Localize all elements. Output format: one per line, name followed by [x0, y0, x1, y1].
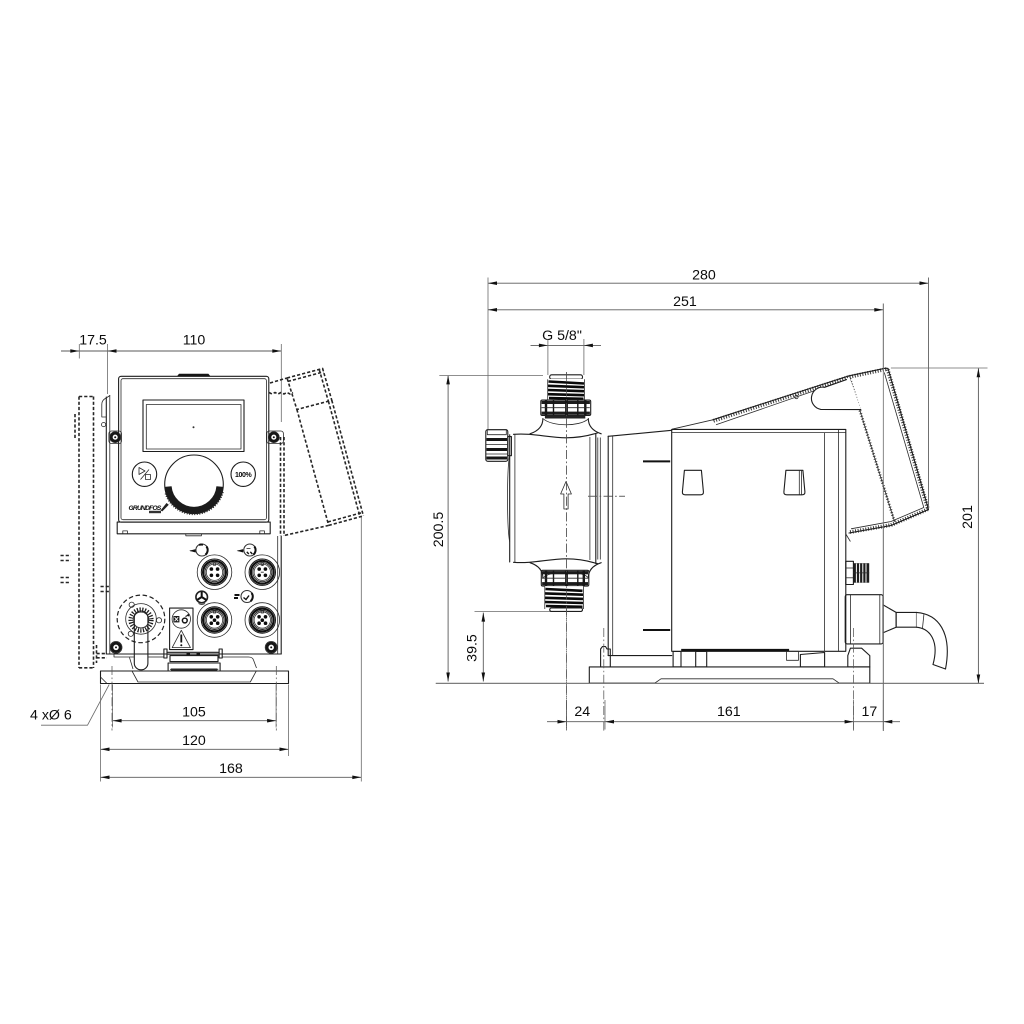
svg-text:161: 161	[717, 704, 741, 720]
svg-text:120: 120	[182, 733, 206, 749]
svg-text:39.5: 39.5	[465, 634, 481, 662]
svg-text:280: 280	[692, 268, 716, 284]
svg-text:105: 105	[182, 705, 206, 721]
svg-text:24: 24	[574, 704, 590, 720]
svg-text:201: 201	[960, 505, 976, 529]
svg-text:4 xØ 6: 4 xØ 6	[30, 708, 72, 724]
svg-text:17.5: 17.5	[79, 333, 107, 349]
svg-text:168: 168	[219, 761, 243, 777]
svg-text:200.5: 200.5	[431, 512, 447, 548]
svg-text:110: 110	[183, 333, 206, 349]
svg-text:17: 17	[862, 704, 878, 720]
svg-text:251: 251	[673, 294, 697, 310]
svg-text:GRUNDFOS: GRUNDFOS	[129, 505, 162, 512]
svg-text:100%: 100%	[235, 472, 252, 479]
